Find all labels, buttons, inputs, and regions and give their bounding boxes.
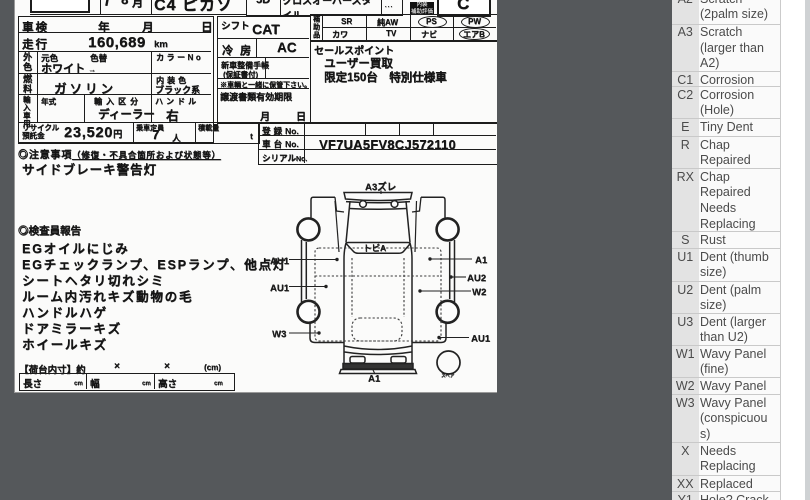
svg-text:W2: W2 [472, 287, 486, 298]
svg-text:W3: W3 [272, 329, 286, 340]
svg-text:トビA: トビA [363, 243, 386, 253]
svg-text:A1: A1 [368, 374, 381, 385]
svg-text:A1: A1 [475, 255, 488, 266]
svg-text:スペア: スペア [441, 373, 455, 379]
svg-text:A3ズレ: A3ズレ [365, 181, 396, 193]
svg-text:AU1: AU1 [270, 256, 290, 267]
svg-text:AU2: AU2 [467, 273, 486, 284]
svg-text:AU1: AU1 [471, 334, 491, 345]
svg-text:AU1: AU1 [270, 283, 290, 294]
